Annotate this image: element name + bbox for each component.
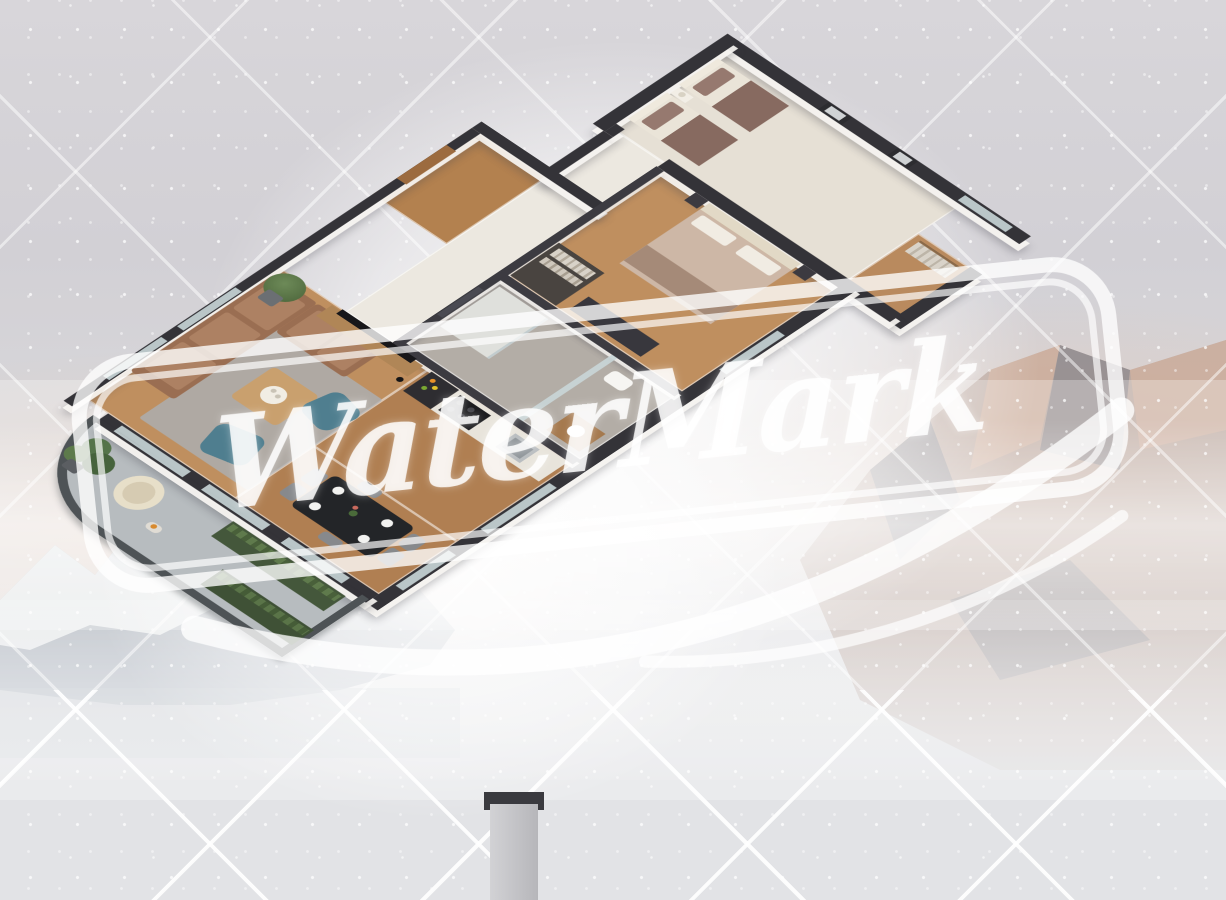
- scene-stage: WaterMark: [0, 0, 1226, 900]
- concrete-pillar: [490, 804, 538, 900]
